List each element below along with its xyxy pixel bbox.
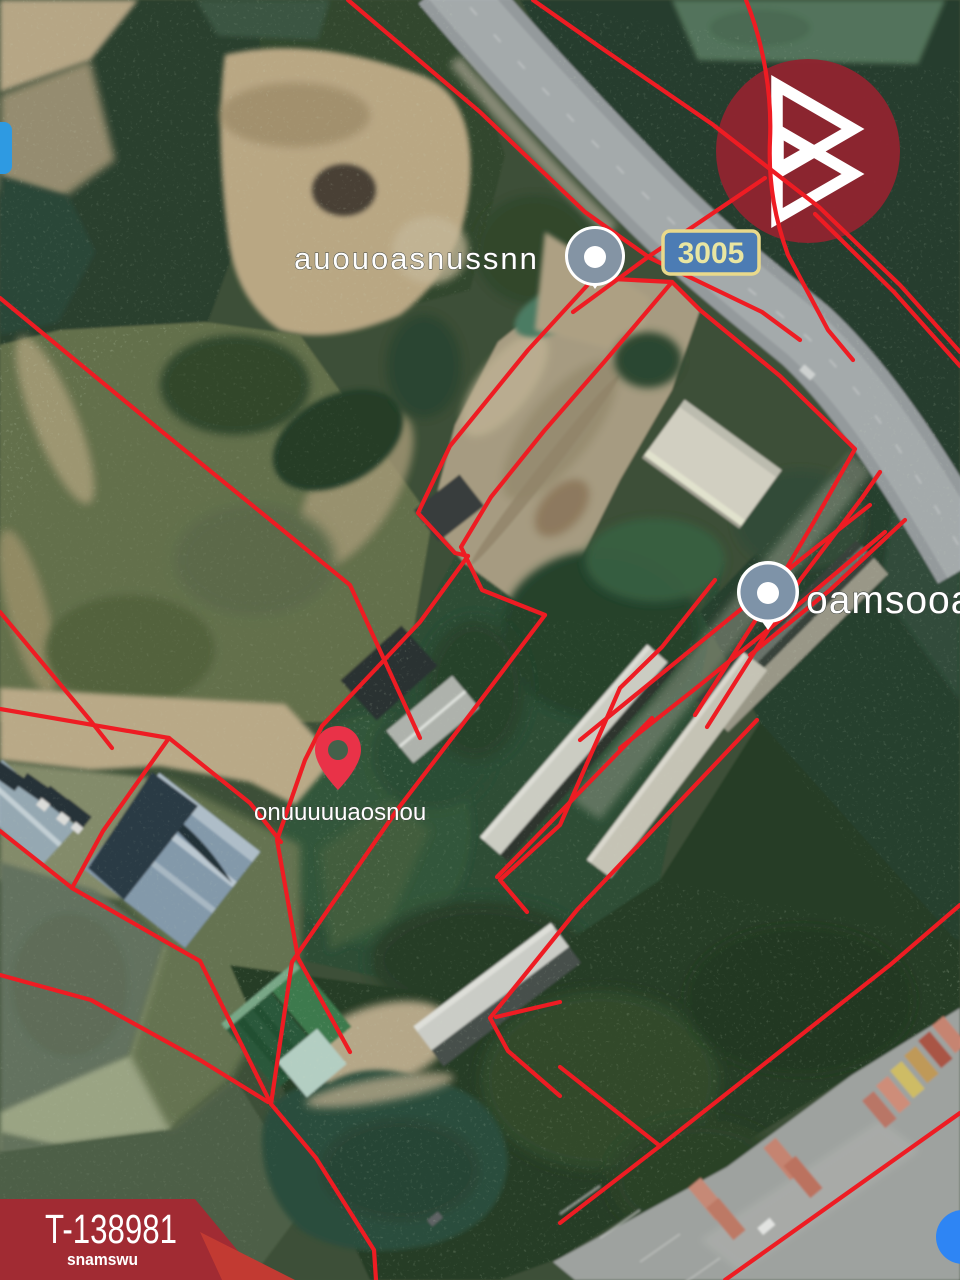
svg-text:T-138981: T-138981 xyxy=(45,1206,177,1252)
svg-text:3005: 3005 xyxy=(678,237,745,270)
svg-text:snamswu: snamswu xyxy=(67,1250,138,1269)
svg-text:oamsooat: oamsooat xyxy=(806,579,960,622)
svg-text:auouoasnussnn: auouoasnussnn xyxy=(294,241,539,276)
svg-text:onuuuuuaosnou: onuuuuuaosnou xyxy=(254,799,426,826)
